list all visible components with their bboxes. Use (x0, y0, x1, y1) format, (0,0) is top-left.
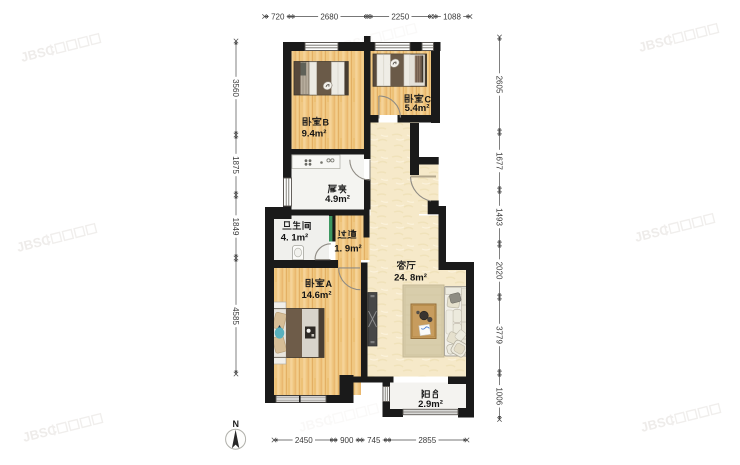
svg-text:1493: 1493 (495, 208, 504, 226)
svg-text:1849: 1849 (231, 218, 240, 236)
svg-text:4.9m²: 4.9m² (325, 194, 350, 205)
svg-text:1677: 1677 (495, 152, 504, 170)
svg-text:B: B (323, 117, 330, 127)
svg-text:745: 745 (367, 436, 381, 445)
svg-text:3560: 3560 (231, 79, 240, 97)
svg-text:1088: 1088 (443, 12, 461, 21)
svg-text:4585: 4585 (231, 307, 240, 325)
svg-text:2855: 2855 (418, 436, 436, 445)
svg-text:1. 9m²: 1. 9m² (334, 244, 361, 255)
svg-text:4. 1m²: 4. 1m² (281, 233, 308, 244)
svg-text:900: 900 (340, 436, 354, 445)
svg-text:N: N (233, 419, 240, 429)
svg-text:3779: 3779 (495, 326, 504, 344)
svg-text:9.4m²: 9.4m² (302, 128, 327, 139)
svg-text:1875: 1875 (231, 156, 240, 174)
svg-text:2250: 2250 (391, 12, 409, 21)
svg-text:5.4m²: 5.4m² (405, 103, 430, 114)
svg-text:2605: 2605 (495, 76, 504, 94)
svg-text:24. 8m²: 24. 8m² (394, 273, 427, 284)
svg-text:2680: 2680 (320, 12, 338, 21)
svg-text:2020: 2020 (495, 262, 504, 280)
svg-text:2450: 2450 (295, 436, 313, 445)
svg-text:A: A (326, 279, 333, 289)
svg-text:2.9m²: 2.9m² (418, 399, 443, 410)
svg-text:14.6m²: 14.6m² (301, 290, 331, 301)
svg-text:720: 720 (271, 12, 285, 21)
svg-text:1006: 1006 (495, 387, 504, 405)
